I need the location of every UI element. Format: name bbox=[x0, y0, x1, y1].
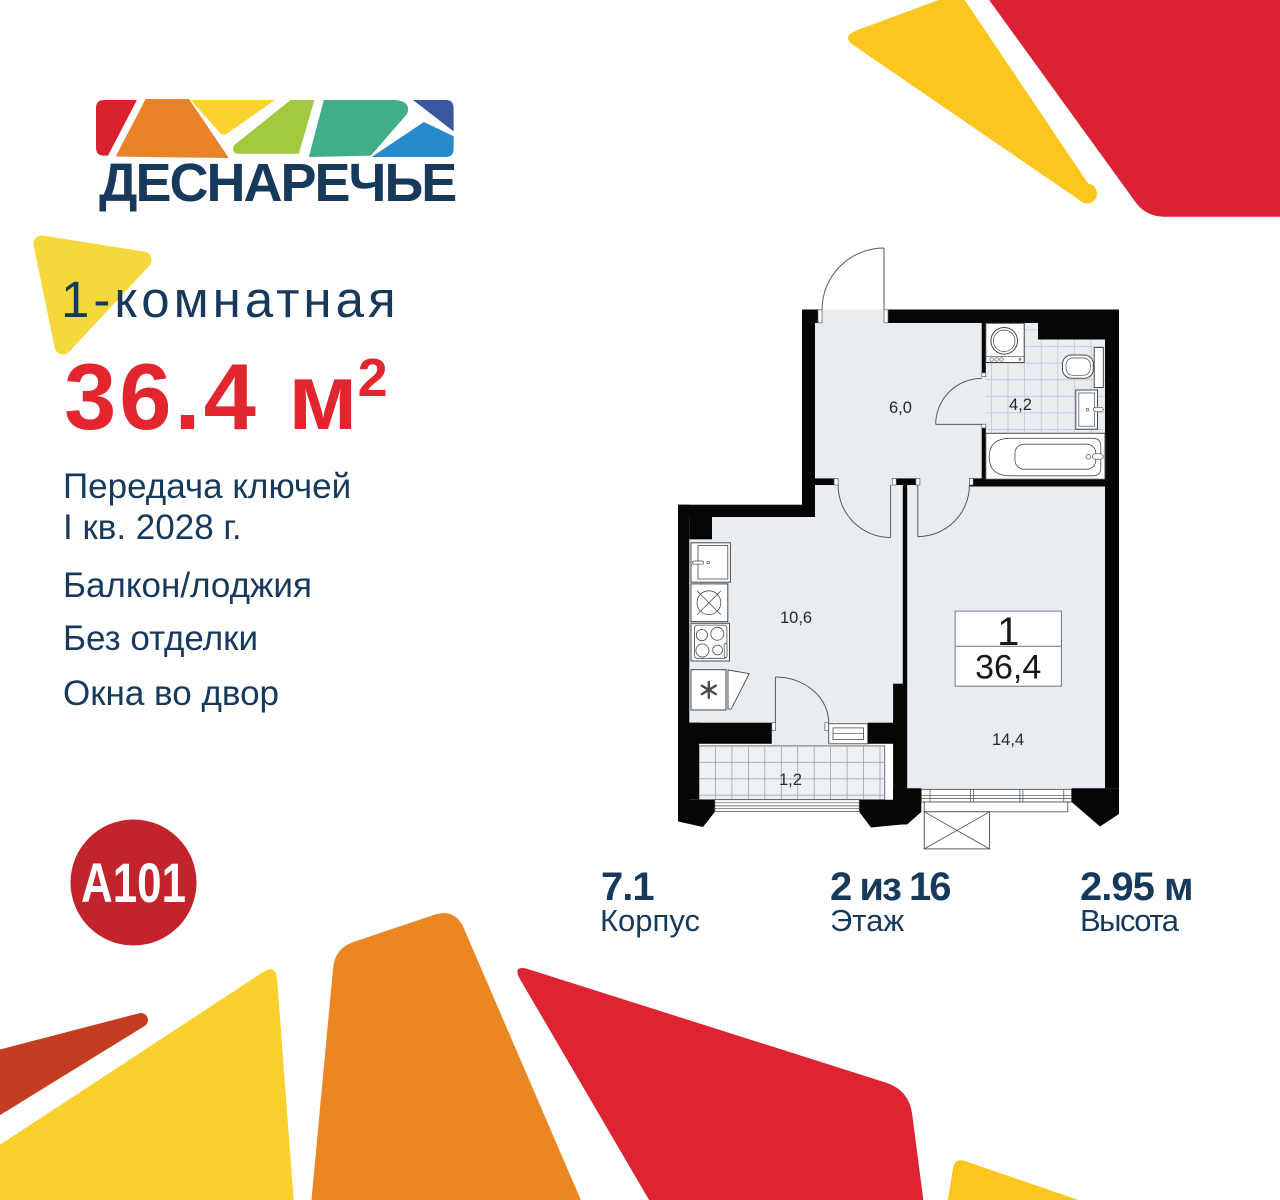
svg-text:10,6: 10,6 bbox=[780, 609, 812, 627]
svg-text:1: 1 bbox=[997, 610, 1019, 654]
svg-text:4,2: 4,2 bbox=[1009, 396, 1032, 414]
svg-text:1,2: 1,2 bbox=[779, 771, 802, 789]
svg-text:14,4: 14,4 bbox=[992, 731, 1024, 749]
svg-text:6,0: 6,0 bbox=[889, 399, 912, 417]
svg-text:A101: A101 bbox=[81, 851, 186, 914]
svg-text:36,4: 36,4 bbox=[975, 649, 1041, 687]
